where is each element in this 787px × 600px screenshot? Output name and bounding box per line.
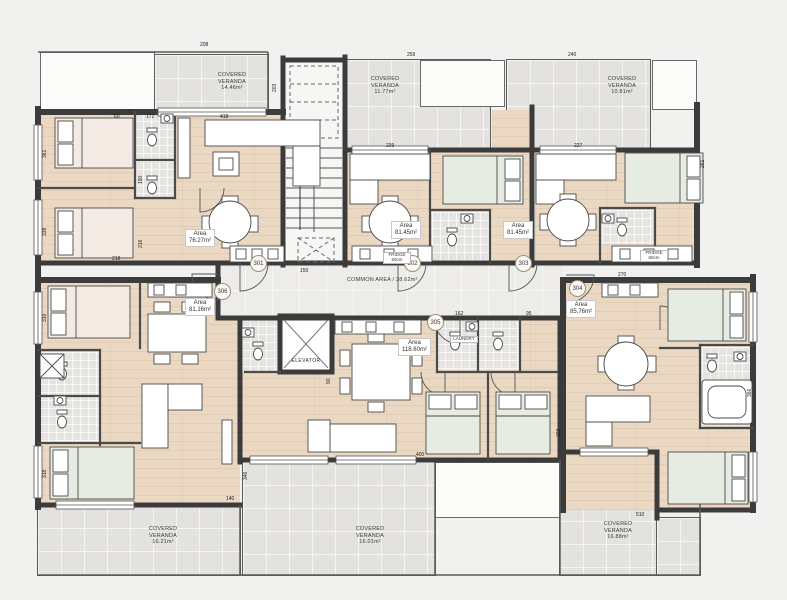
veranda-area: 10.81m² xyxy=(611,89,633,95)
apartment-303-area-label: Area 81.45m² xyxy=(503,221,533,239)
veranda-title: COVERED VERANDA xyxy=(218,72,247,85)
floor-plan-page: { "plan": { "common_area_label": "COMMON… xyxy=(0,0,787,600)
veranda-label-bottom-middle: COVERED VERANDA 16.01m² xyxy=(342,526,398,546)
parapets xyxy=(38,52,700,575)
veranda-title: COVERED VERANDA xyxy=(604,521,633,534)
veranda-title: COVERED VERANDA xyxy=(608,76,637,89)
area-title: Area xyxy=(408,340,421,346)
apartment-306-area-label: Area 81.16m² xyxy=(185,298,215,316)
area-value: 85.76m² xyxy=(570,309,592,315)
bed xyxy=(48,286,130,338)
apartment-302-area-label: Area 81.45m² xyxy=(391,221,421,239)
area-value: 81.16m² xyxy=(189,307,211,313)
veranda-label-bottom-right: COVERED VERANDA 16.88m² xyxy=(590,521,646,541)
apartment-306-badge: 306 xyxy=(214,283,231,300)
furniture xyxy=(40,114,752,504)
bed xyxy=(55,118,133,168)
apartment-302-badge: 302 xyxy=(404,255,421,272)
area-title: Area xyxy=(400,223,413,229)
area-value: 81.45m² xyxy=(395,230,417,236)
bed xyxy=(426,392,480,454)
apartment-305-area-label: Area 118.60m² xyxy=(398,338,431,356)
area-value: 76.27m² xyxy=(189,238,211,244)
sofa xyxy=(205,120,320,186)
veranda-title: COVERED VERANDA xyxy=(149,526,178,539)
veranda-label-top-right: COVERED VERANDA 10.81m² xyxy=(594,76,650,96)
bed xyxy=(50,447,134,499)
veranda-area: 16.88m² xyxy=(607,534,629,540)
dining-table-round xyxy=(598,336,656,390)
veranda-area: 16.01m² xyxy=(359,539,381,545)
area-value: 118.60m² xyxy=(402,347,427,353)
bed xyxy=(443,156,523,204)
veranda-title: COVERED VERANDA xyxy=(371,76,400,89)
tv-unit xyxy=(222,420,232,464)
bed xyxy=(668,452,748,504)
apartment-304-badge: 304 xyxy=(569,280,586,297)
veranda-label-top-middle: COVERED VERANDA 11.77m² xyxy=(357,76,413,96)
shower xyxy=(40,354,64,378)
veranda-area: 14.46m² xyxy=(221,85,243,91)
veranda-label-bottom-left: COVERED VERANDA 16.21m² xyxy=(135,526,191,546)
sofa xyxy=(142,384,202,448)
veranda-area: 11.77m² xyxy=(374,89,395,95)
bed xyxy=(55,208,133,258)
elevator-label: ELEVATOR xyxy=(282,358,330,364)
area-title: Area xyxy=(512,223,525,229)
apartment-303-badge: 303 xyxy=(515,255,532,272)
area-title: Area xyxy=(575,302,588,308)
common-area-label: COMMON AREA / 38.62m² xyxy=(347,277,418,283)
bed xyxy=(496,392,550,454)
bathtub xyxy=(702,380,752,424)
apartment-304-area-label: Area 85.76m² xyxy=(566,300,596,318)
area-title: Area xyxy=(194,231,207,237)
sofa xyxy=(586,396,650,446)
sofa xyxy=(308,420,396,452)
apartment-301-area-label: Area 76.27m² xyxy=(185,229,215,247)
area-value: 81.45m² xyxy=(507,230,529,236)
bed xyxy=(625,153,703,203)
apartment-305-badge: 305 xyxy=(427,314,444,331)
veranda-area: 16.21m² xyxy=(152,539,174,545)
tv-unit xyxy=(178,118,190,178)
area-title: Area xyxy=(194,300,207,306)
veranda-label-top-left: COVERED VERANDA 14.46m² xyxy=(204,72,260,92)
bed xyxy=(668,289,746,341)
veranda-title: COVERED VERANDA xyxy=(356,526,385,539)
apartment-301-badge: 301 xyxy=(250,255,267,272)
